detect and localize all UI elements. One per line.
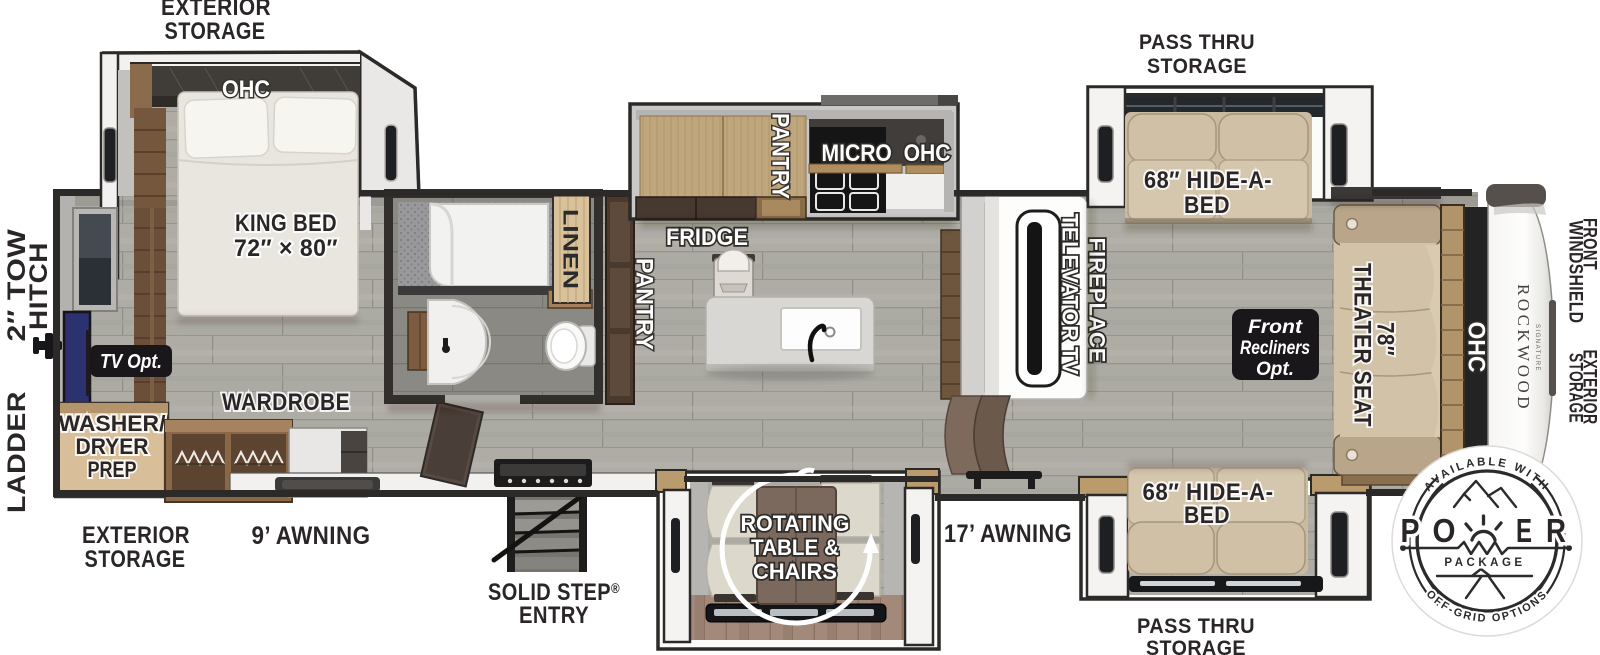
svg-text:9’ AWNING: 9’ AWNING [252,522,371,550]
svg-text:ROCKWOOD: ROCKWOOD [1514,284,1533,412]
svg-text:PANTRY: PANTRY [631,258,658,350]
svg-text:72″ × 80″: 72″ × 80″ [234,235,338,262]
svg-text:PASS THRU: PASS THRU [1139,30,1255,54]
svg-text:SIGNATURE: SIGNATURE [1534,324,1540,372]
svg-text:P: P [1401,512,1420,549]
svg-text:17’ AWNING: 17’ AWNING [944,520,1072,548]
svg-text:Opt.: Opt. [1256,359,1294,380]
svg-text:STORAGE: STORAGE [85,546,186,573]
svg-text:ROTATING: ROTATING [741,511,850,536]
svg-text:STORAGE: STORAGE [165,18,266,45]
svg-text:OHC: OHC [1463,322,1490,373]
svg-text:BED: BED [1184,502,1230,529]
svg-text:PANTRY: PANTRY [767,113,794,199]
svg-text:STORAGE: STORAGE [1564,353,1585,423]
svg-text:PREP: PREP [88,457,137,482]
svg-text:THEATER SEAT: THEATER SEAT [1349,263,1376,427]
svg-text:Front: Front [1248,317,1303,338]
svg-text:OHC: OHC [222,76,270,103]
svg-text:STORAGE: STORAGE [1146,636,1246,655]
svg-text:CHAIRS: CHAIRS [753,559,837,584]
svg-text:TABLE &: TABLE & [751,535,839,560]
svg-text:LINEN: LINEN [559,209,582,289]
svg-text:PASS THRU: PASS THRU [1137,614,1255,638]
svg-text:R: R [1546,512,1566,549]
svg-text:FRIDGE: FRIDGE [666,224,748,251]
svg-text:ENTRY: ENTRY [519,602,589,629]
svg-text:Recliners: Recliners [1240,338,1310,359]
svg-text:68″ HIDE-A-: 68″ HIDE-A- [1144,167,1272,194]
svg-text:HITCH: HITCH [25,242,53,330]
svg-text:EXTERIOR: EXTERIOR [82,522,190,549]
svg-text:MICRO OHC: MICRO OHC [822,140,951,167]
svg-text:TELEVATOR TV: TELEVATOR TV [1057,214,1082,375]
svg-text:LADDER: LADDER [3,391,31,513]
svg-text:E: E [1516,512,1532,549]
svg-text:KING BED: KING BED [235,210,337,237]
svg-text:O: O [1433,512,1456,549]
svg-text:PACKAGE: PACKAGE [1444,557,1525,569]
svg-text:WASHER/: WASHER/ [59,411,166,436]
svg-text:BED: BED [1184,192,1230,219]
svg-text:WARDROBE: WARDROBE [222,389,350,416]
svg-text:TV Opt.: TV Opt. [100,351,162,373]
svg-text:DRYER: DRYER [76,434,149,459]
svg-text:WINDSHIELD: WINDSHIELD [1564,221,1585,324]
svg-text:STORAGE: STORAGE [1147,54,1247,78]
